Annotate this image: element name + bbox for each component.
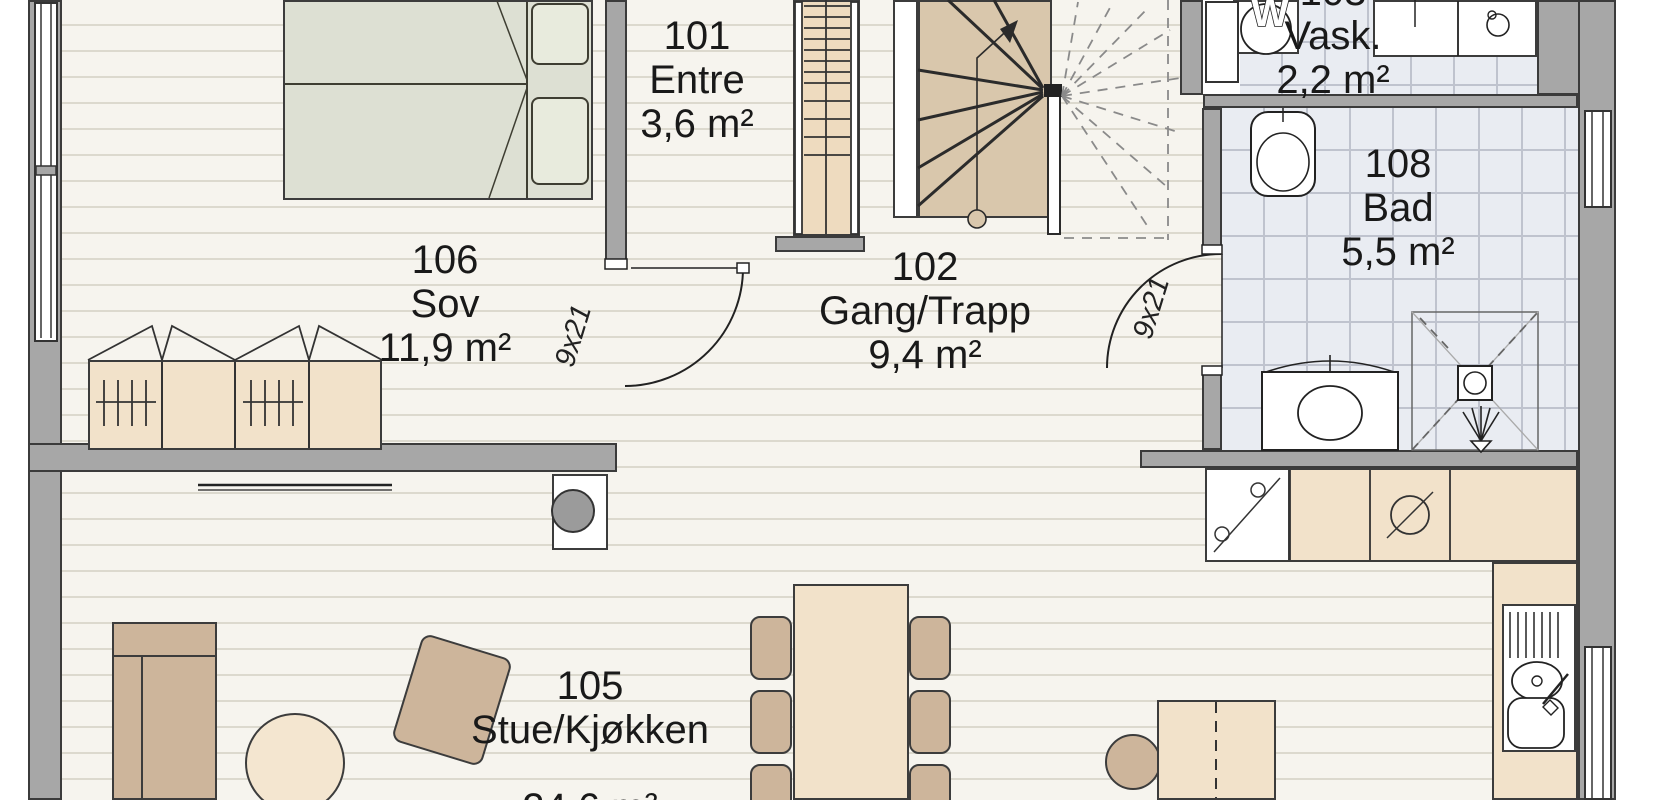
- room-label-103: 103 Vask. 2,2 m²: [1276, 0, 1389, 102]
- stair-above-dashed: [1062, 0, 1180, 240]
- room-area: 9,4 m²: [819, 333, 1031, 377]
- kitchen-counter-detail: [1214, 470, 1450, 560]
- vanity-sink: [1262, 355, 1398, 450]
- toilet: [1251, 108, 1315, 196]
- laundry-door-leaf: [1206, 2, 1238, 82]
- floor-plan: W: [0, 0, 1670, 800]
- room-name: Vask.: [1276, 14, 1389, 58]
- shower: [1412, 312, 1538, 452]
- room-area: 24,6 m²: [471, 786, 709, 800]
- room-area: 5,5 m²: [1341, 230, 1454, 274]
- laundry-counter-detail: [1415, 0, 1509, 56]
- room-number: 105: [471, 664, 709, 708]
- bed-detail: [285, 1, 588, 198]
- room-number: 108: [1341, 142, 1454, 186]
- sofa-detail: [113, 656, 216, 799]
- room-name: Sov: [379, 282, 512, 326]
- room-number: 106: [379, 238, 512, 282]
- room-label-105: 105 Stue/Kjøkken 24,6 m²: [471, 664, 709, 800]
- kitchen-sink-detail: [1508, 612, 1568, 748]
- stove-pipe: [552, 490, 594, 532]
- room-label-108: 108 Bad 5,5 m²: [1341, 142, 1454, 274]
- bedroom-door: [605, 259, 749, 386]
- room-number: 103: [1276, 0, 1389, 14]
- room-area: 3,6 m²: [640, 102, 753, 146]
- entry-closet-detail: [795, 0, 858, 234]
- room-name: Bad: [1341, 186, 1454, 230]
- left-window-frame: [36, 4, 56, 338]
- room-label-101: 101 Entre 3,6 m²: [640, 14, 753, 146]
- staircase-detail: [918, 0, 1062, 234]
- room-number: 102: [819, 245, 1031, 289]
- room-name: Entre: [640, 58, 753, 102]
- right-window-frames: [1592, 112, 1603, 798]
- room-number: 101: [640, 14, 753, 58]
- wardrobe-detail: [88, 326, 382, 448]
- room-label-106: 106 Sov 11,9 m²: [379, 238, 512, 370]
- tv-bench: [198, 485, 392, 490]
- plan-linework: W: [0, 0, 1670, 800]
- room-area: 2,2 m²: [1276, 58, 1389, 102]
- shower-head-icon: [1463, 406, 1499, 452]
- room-label-102: 102 Gang/Trapp 9,4 m²: [819, 245, 1031, 377]
- room-name: Stue/Kjøkken: [471, 708, 709, 752]
- room-area: 11,9 m²: [379, 326, 512, 370]
- room-name: Gang/Trapp: [819, 289, 1031, 333]
